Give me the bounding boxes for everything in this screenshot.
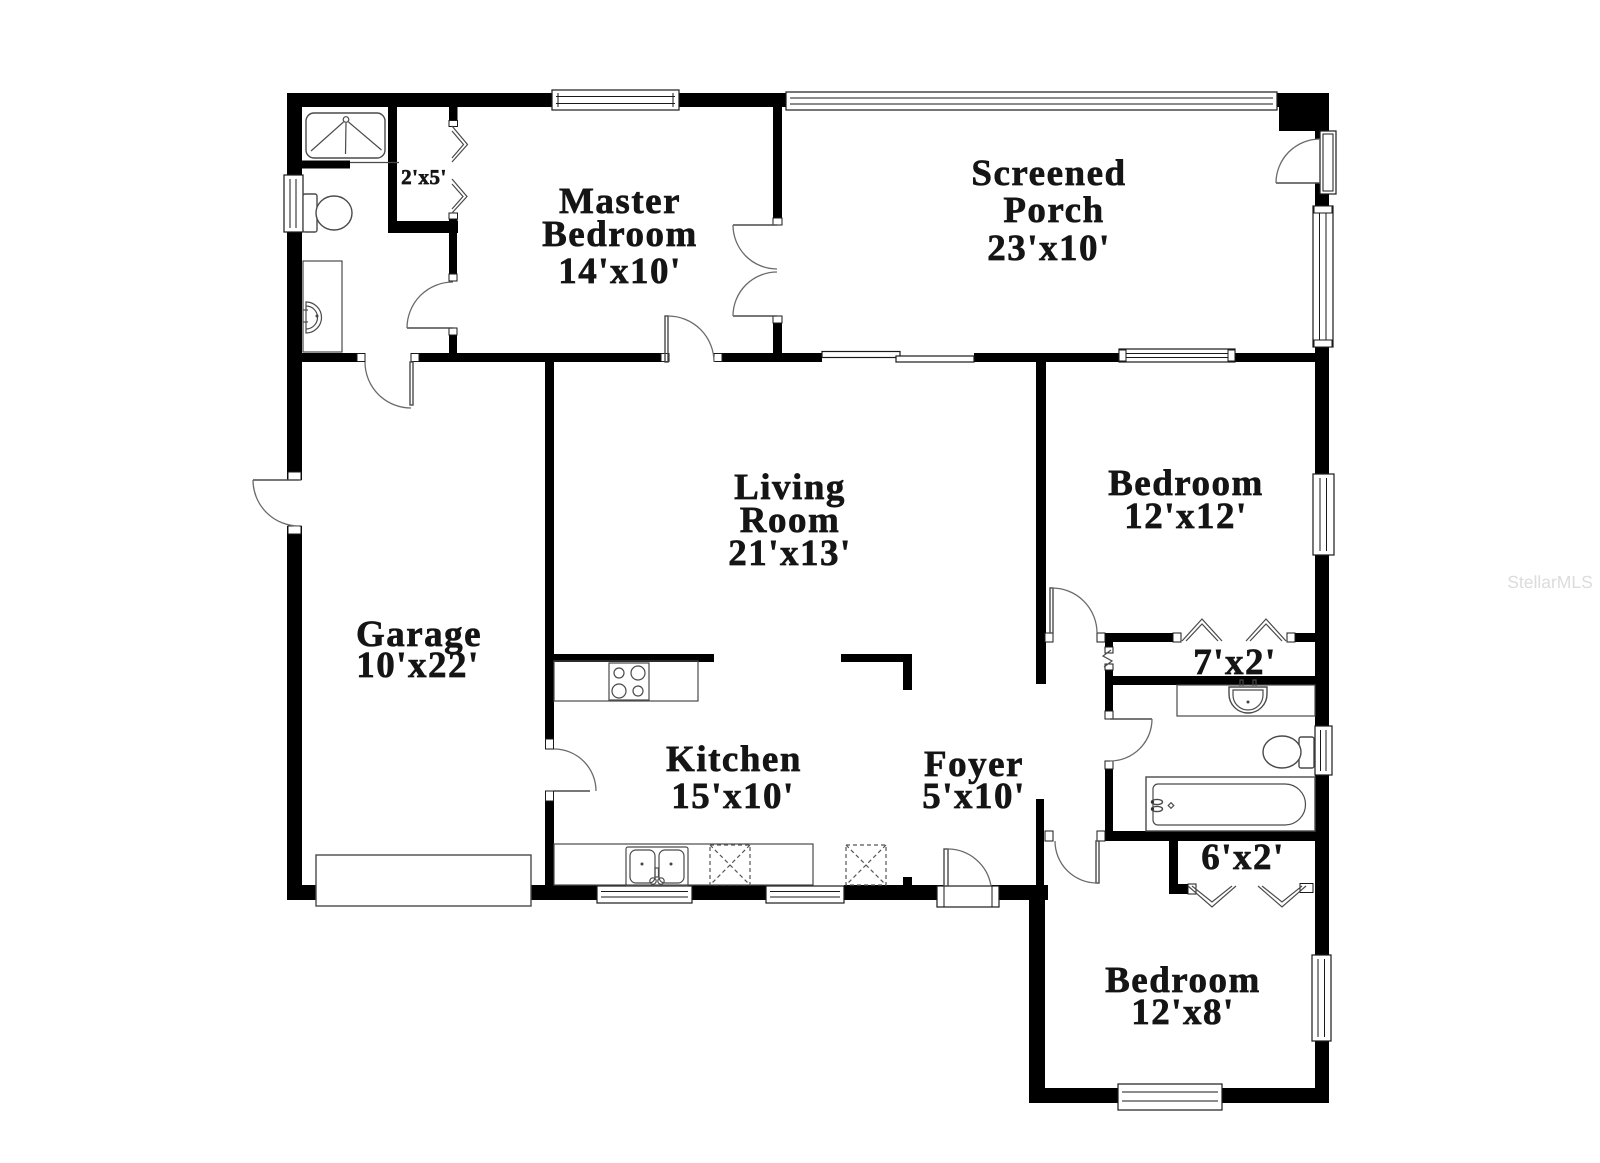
svg-text:5'x10': 5'x10': [922, 776, 1026, 817]
svg-text:Porch: Porch: [1003, 190, 1104, 231]
svg-text:StellarMLS: StellarMLS: [1507, 572, 1593, 592]
svg-text:23'x10': 23'x10': [987, 228, 1111, 269]
svg-text:Kitchen: Kitchen: [666, 739, 802, 780]
svg-text:15'x10': 15'x10': [671, 776, 795, 817]
svg-text:2'x5': 2'x5': [401, 165, 447, 189]
svg-text:7'x2': 7'x2': [1193, 642, 1277, 683]
svg-text:12'x12': 12'x12': [1124, 496, 1248, 537]
svg-text:12'x8': 12'x8': [1131, 992, 1235, 1033]
svg-text:21'x13': 21'x13': [728, 533, 852, 574]
svg-text:6'x2': 6'x2': [1201, 837, 1285, 878]
svg-text:Screened: Screened: [971, 153, 1126, 194]
svg-text:Bedroom: Bedroom: [542, 214, 698, 255]
svg-text:10'x22': 10'x22': [356, 645, 480, 686]
svg-text:14'x10': 14'x10': [558, 251, 682, 292]
